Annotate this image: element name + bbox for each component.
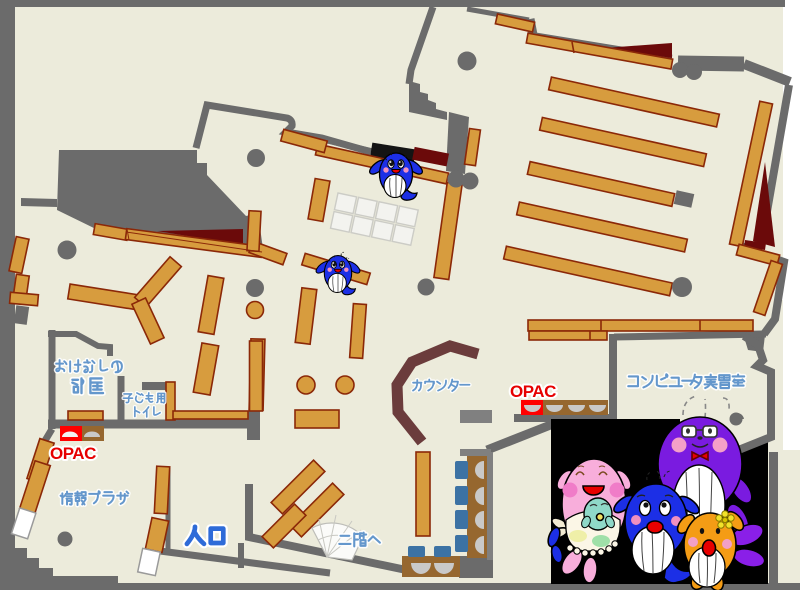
svg-text:OPAC: OPAC <box>510 382 556 401</box>
svg-text:OPAC: OPAC <box>50 444 96 463</box>
